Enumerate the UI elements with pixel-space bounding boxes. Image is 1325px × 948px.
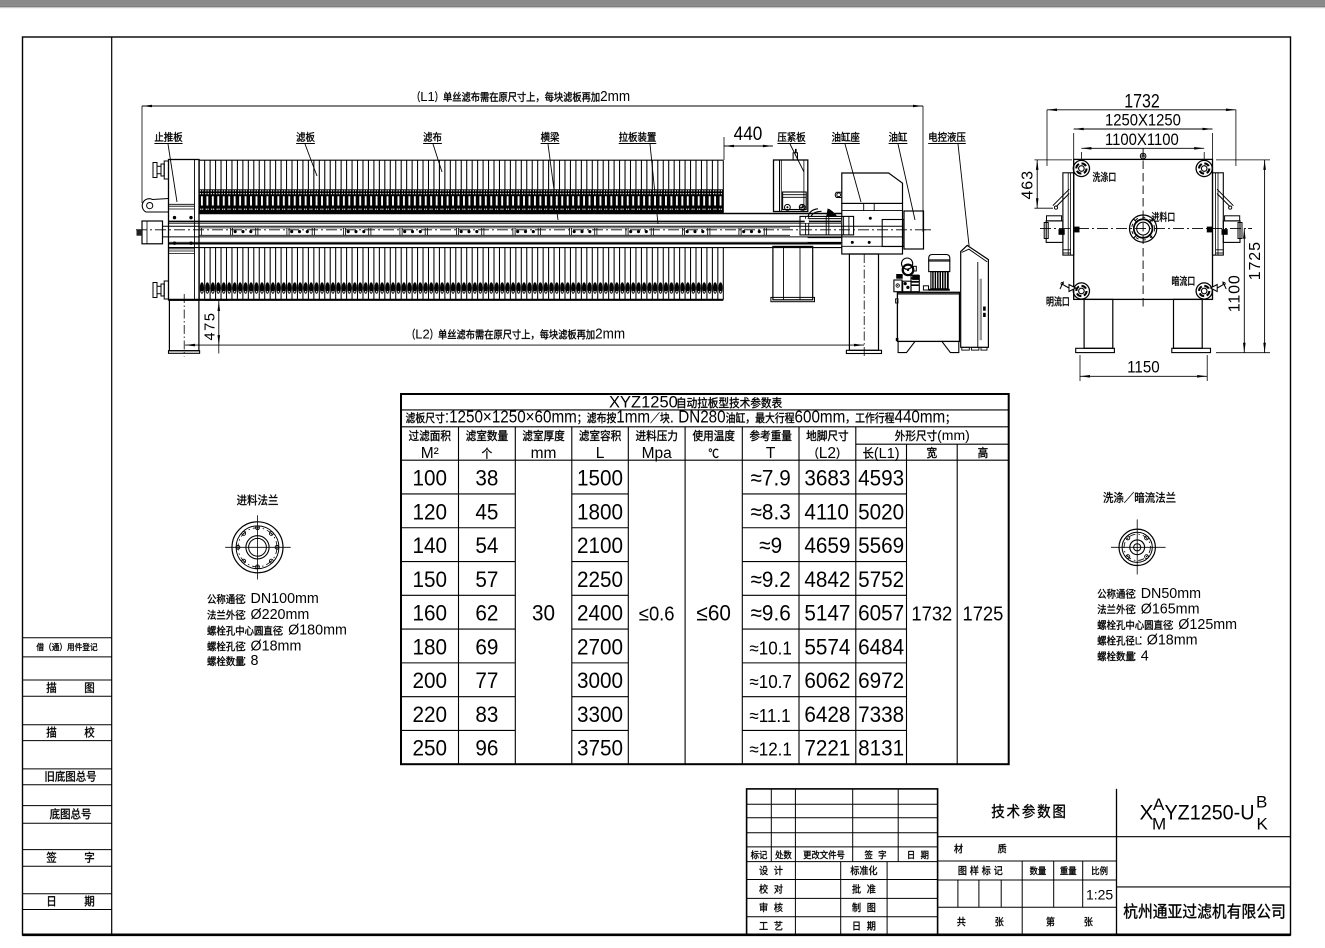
svg-text:5752: 5752 [858,566,904,592]
svg-text:69: 69 [475,634,498,660]
svg-text:5569: 5569 [858,532,904,558]
svg-text:4593: 4593 [858,465,904,491]
svg-text:: 8: : 8 [243,653,259,669]
svg-text:L2: L2 [415,327,429,342]
svg-text:440mm: 440mm [894,407,945,426]
svg-text:T: T [766,445,776,462]
svg-text:3750: 3750 [577,735,623,761]
svg-text:1mm: 1mm [616,407,650,426]
svg-text:54: 54 [475,532,498,558]
svg-text:96: 96 [475,735,498,761]
svg-text:A: A [1153,795,1165,814]
svg-text:5574: 5574 [804,634,850,660]
svg-text:3683: 3683 [804,465,850,491]
svg-text:: Ø180mm: : Ø180mm [280,623,347,639]
svg-text:L1: L1 [420,89,434,104]
svg-text:4842: 4842 [804,566,850,592]
svg-text:475: 475 [203,312,219,341]
svg-text:1725: 1725 [962,604,1003,626]
svg-text:30: 30 [532,600,555,626]
svg-text:≈11.1: ≈11.1 [749,705,790,726]
svg-text:L2: L2 [819,445,836,462]
svg-text:≈9.6: ≈9.6 [751,600,791,626]
svg-text:2100: 2100 [577,532,623,558]
svg-text:. DN280: . DN280 [670,407,726,426]
svg-text:: 4: : 4 [1133,648,1149,664]
svg-text:mm: mm [531,445,557,462]
svg-text:7221: 7221 [804,735,850,761]
svg-text:140: 140 [412,532,447,558]
svg-text:1732: 1732 [911,604,952,626]
svg-text:5147: 5147 [804,600,850,626]
svg-text:: Ø165mm: : Ø165mm [1133,601,1200,617]
svg-text:57: 57 [475,566,498,592]
svg-text:Mpa: Mpa [642,445,673,462]
svg-text:2400: 2400 [577,600,623,626]
svg-text:150: 150 [412,566,447,592]
svg-text:(L1): (L1) [874,446,900,462]
svg-text:4110: 4110 [804,498,848,524]
svg-text:: Ø18mm: : Ø18mm [243,638,302,654]
svg-text:6428: 6428 [804,701,850,727]
svg-text:YZ1250-U: YZ1250-U [1165,802,1255,825]
svg-text:4659: 4659 [804,532,850,558]
svg-text:1732: 1732 [1124,90,1159,112]
svg-text:: Ø220mm: : Ø220mm [243,607,310,623]
svg-text:: Ø125mm: : Ø125mm [1170,617,1237,633]
svg-text:180: 180 [412,634,447,660]
svg-text:6057: 6057 [858,600,904,626]
svg-text:M²: M² [421,445,439,462]
svg-text:45: 45 [475,498,498,524]
svg-text:120: 120 [412,498,447,524]
svg-text:≈7.9: ≈7.9 [751,465,791,491]
svg-text:≤0.6: ≤0.6 [639,604,675,626]
svg-text::1250×1250×60mm: :1250×1250×60mm [445,407,577,426]
svg-text:62: 62 [475,600,498,626]
svg-text:≈10.7: ≈10.7 [749,672,791,693]
svg-text:: DN100mm: : DN100mm [243,591,319,607]
svg-text:8131: 8131 [858,735,904,761]
svg-text:6062: 6062 [804,667,850,693]
svg-text:L: L [596,445,605,462]
svg-text:600mm: 600mm [795,407,846,426]
svg-text:≤60: ≤60 [697,600,731,626]
svg-text:2250: 2250 [577,566,623,592]
svg-text:: DN50mm: : DN50mm [1133,586,1201,602]
svg-text:K: K [1257,815,1269,834]
svg-text:1250X1250: 1250X1250 [1105,112,1181,130]
svg-text:≈8.3: ≈8.3 [751,498,791,524]
svg-text:: Ø18mm: : Ø18mm [1139,633,1198,649]
svg-text:5020: 5020 [858,498,904,524]
svg-text:2mm: 2mm [600,88,630,105]
svg-text:100: 100 [412,465,447,491]
svg-text:2mm: 2mm [595,326,625,343]
svg-text:463: 463 [1020,170,1037,199]
svg-text:B: B [1256,793,1267,812]
svg-text:440: 440 [734,122,763,144]
svg-text:160: 160 [412,600,447,626]
svg-text:1725: 1725 [1247,241,1264,280]
svg-text:200: 200 [412,667,447,693]
svg-text:77: 77 [475,667,498,693]
svg-text:≈10.1: ≈10.1 [749,638,792,659]
svg-text:83: 83 [475,701,498,727]
svg-text:(mm): (mm) [937,427,970,443]
svg-text:250: 250 [412,735,447,761]
svg-text:220: 220 [412,701,447,727]
svg-text:≈9: ≈9 [759,532,782,558]
svg-text:≈12.1: ≈12.1 [749,739,792,760]
svg-text:3000: 3000 [577,667,623,693]
svg-text:38: 38 [475,465,498,491]
svg-text:3300: 3300 [577,701,623,727]
svg-text:1:25: 1:25 [1086,887,1113,903]
svg-text:1100: 1100 [1227,274,1244,312]
svg-text:6484: 6484 [858,634,904,660]
svg-text:6972: 6972 [858,667,904,693]
svg-text:1150: 1150 [1127,359,1160,377]
svg-text:≈9.2: ≈9.2 [751,566,791,592]
svg-text:1100X1100: 1100X1100 [1105,131,1179,149]
svg-text:1500: 1500 [577,465,623,491]
svg-text:2700: 2700 [577,634,623,660]
svg-text:1800: 1800 [577,498,623,524]
svg-text:7338: 7338 [858,701,904,727]
